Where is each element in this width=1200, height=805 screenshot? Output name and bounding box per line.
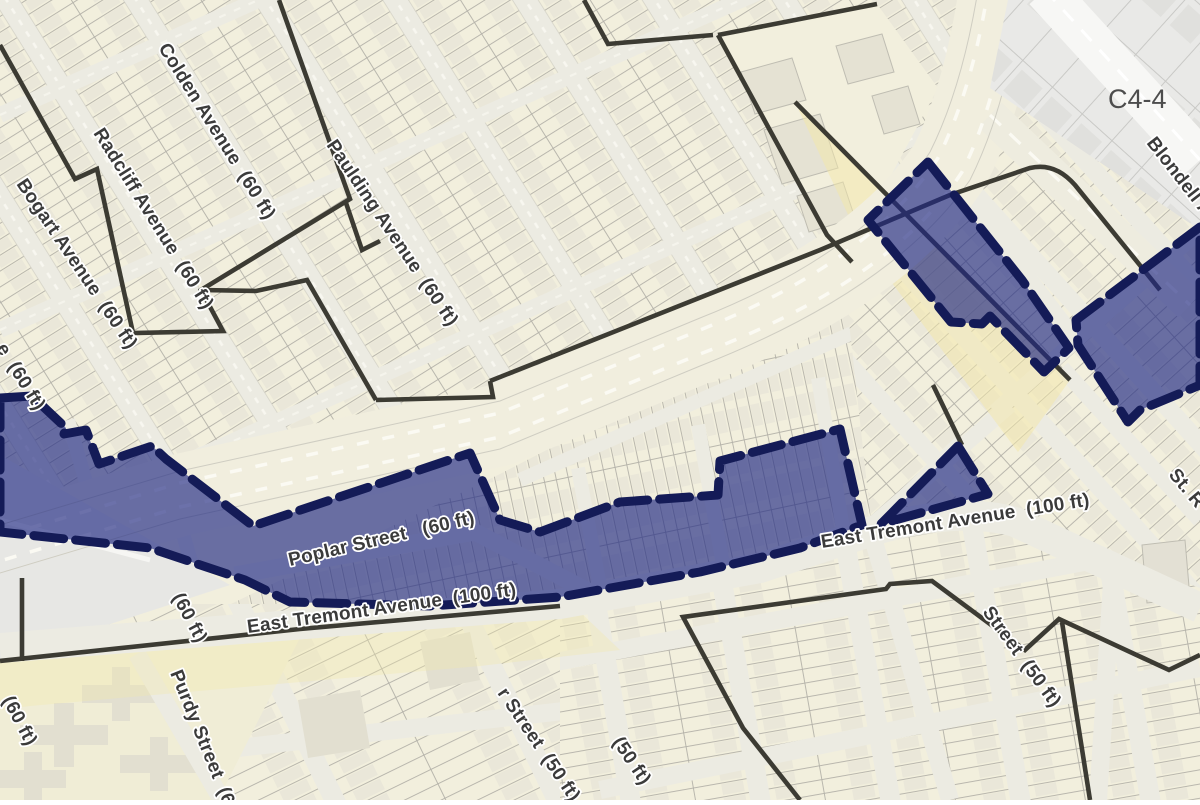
svg-text:C4-4: C4-4 — [1108, 84, 1167, 114]
